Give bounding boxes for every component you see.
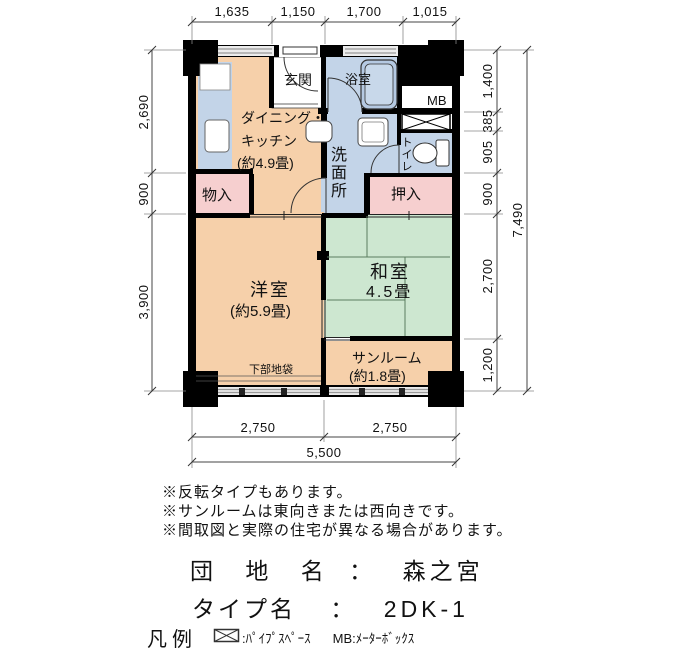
japanese-room-label: 和室	[370, 262, 410, 282]
dk-label-size: (約4.9畳)	[237, 155, 294, 171]
wall-bottom-center-stub	[320, 385, 329, 397]
dk-label-line1: ダイニング・	[241, 110, 325, 126]
legend-title: 凡例	[147, 623, 197, 650]
bath-door-opening	[328, 108, 362, 114]
legend-pipe-space-label: :ﾊﾟｲﾌﾟｽﾍﾟｰｽ	[242, 628, 311, 647]
dim-bottom-total: 5,500	[306, 445, 341, 460]
toilet-tank	[436, 140, 449, 166]
dim-top-4: 1,015	[412, 4, 447, 19]
wall-bath-mb	[397, 57, 402, 112]
svg-text:ト: ト	[402, 137, 413, 149]
window-top-bath	[343, 46, 398, 56]
estate-name-value: 森之宮	[403, 558, 484, 584]
toilet-bowl	[413, 143, 437, 163]
dim-right-4: 900	[480, 182, 495, 205]
wall-stub-marker	[317, 251, 329, 260]
dim-left-3: 3,900	[136, 284, 151, 319]
wall-closet-futon-top	[364, 173, 452, 177]
dim-left-2: 900	[136, 182, 151, 205]
dim-right-2: 385	[480, 109, 495, 132]
western-room-size: (約5.9畳)	[230, 303, 291, 320]
dk-label-line2: キッチン	[241, 133, 297, 149]
wall-left	[188, 45, 196, 397]
dim-bottom-1: 2,750	[240, 420, 275, 435]
entrance-door-leaf	[283, 47, 317, 54]
toilet-label-vertical: ト イ レ	[402, 137, 413, 173]
dim-right-5: 2,700	[480, 258, 495, 293]
closet-small-label: 物入	[202, 187, 232, 204]
estate-name-separator: ：	[349, 558, 372, 584]
dim-top-3: 1,700	[346, 4, 381, 19]
type-name-row: タイプ名 ： 2DK-1	[192, 590, 469, 624]
bathroom-label: 浴室	[345, 72, 371, 87]
pipe-space-box	[402, 114, 450, 130]
sunroom-label: サンルーム	[352, 350, 422, 366]
type-name-value: 2DK-1	[384, 596, 469, 622]
dim-right-total: 7,490	[510, 202, 525, 237]
western-room-label: 洋室	[250, 280, 290, 300]
pipe-space-icon	[213, 628, 240, 648]
svg-text:洗: 洗	[331, 146, 347, 164]
dim-bottom-2: 2,750	[372, 420, 407, 435]
lower-cabinet-label: 下部地袋	[249, 362, 293, 376]
japanese-room-size: 4.5畳	[366, 284, 412, 301]
window-sash-tick	[359, 388, 365, 395]
dim-right-6: 1,200	[480, 347, 495, 382]
wall-row-left	[188, 213, 250, 218]
kitchen-sink	[205, 120, 229, 152]
note-line: ※間取図と実際の住宅が異なる場合があります。	[162, 521, 513, 540]
note-line: ※反転タイプもあります。	[162, 483, 513, 502]
legend-meter-box-label: MB:ﾒｰﾀｰﾎﾞｯｸｽ	[333, 628, 415, 647]
dim-left-1: 2,690	[136, 94, 151, 129]
window-sash-tick	[399, 388, 405, 395]
estate-name-label: 団 地 名	[190, 558, 337, 584]
svg-text:所: 所	[331, 182, 347, 200]
window-top-kitchen	[214, 46, 274, 56]
sunroom-size: (約1.8畳)	[349, 368, 406, 384]
wall-washroom-toilet	[397, 114, 401, 145]
estate-name-row: 団 地 名 ： 森之宮	[190, 552, 484, 586]
dim-top-1: 1,635	[214, 4, 249, 19]
wall-japanese-sunroom	[350, 336, 452, 341]
type-name-separator: ：	[330, 596, 353, 622]
wall-row-mid	[322, 213, 368, 218]
meter-box-label: MB	[427, 93, 447, 108]
notes-block: ※反転タイプもあります。 ※サンルームは東向きまたは西向きです。 ※間取図と実際…	[162, 483, 513, 540]
wall-closet-small-right	[249, 174, 254, 214]
wall-entrance-left	[269, 57, 274, 108]
window-sash-tick	[281, 388, 287, 395]
wall-west-japanese-lower	[321, 338, 326, 385]
svg-text:面: 面	[331, 165, 347, 182]
dim-right-3: 905	[480, 140, 495, 163]
legend-row: 凡例 :ﾊﾟｲﾌﾟｽﾍﾟｰｽ MB:ﾒｰﾀｰﾎﾞｯｸｽ	[147, 623, 414, 650]
closet-futon-label: 押入	[391, 186, 421, 203]
wall-closet-futon-left	[364, 177, 370, 214]
note-line: ※サンルームは東向きまたは西向きです。	[162, 502, 513, 521]
window-sash-tick	[239, 388, 245, 395]
entrance-label: 玄関	[284, 72, 312, 88]
wall-right	[452, 45, 460, 397]
sliding-door-japanese-sunroom	[324, 338, 350, 341]
wall-entrance-bath	[321, 57, 326, 108]
pillar-bottom-right	[428, 371, 464, 407]
svg-text:イ: イ	[402, 149, 413, 161]
pillar-top-right	[428, 40, 464, 76]
type-name-label: タイプ名	[192, 596, 296, 622]
dim-top-2: 1,150	[280, 4, 315, 19]
washroom-label-vertical: 洗 面 所	[331, 146, 347, 200]
kitchen-appliance	[200, 64, 230, 90]
svg-text:レ: レ	[402, 161, 413, 173]
dim-right-1: 1,400	[480, 63, 495, 98]
floor-plan-page: ダイニング・ キッチン (約4.9畳) 玄関 浴室 MB 洗 面 所 ト イ レ…	[0, 0, 700, 650]
